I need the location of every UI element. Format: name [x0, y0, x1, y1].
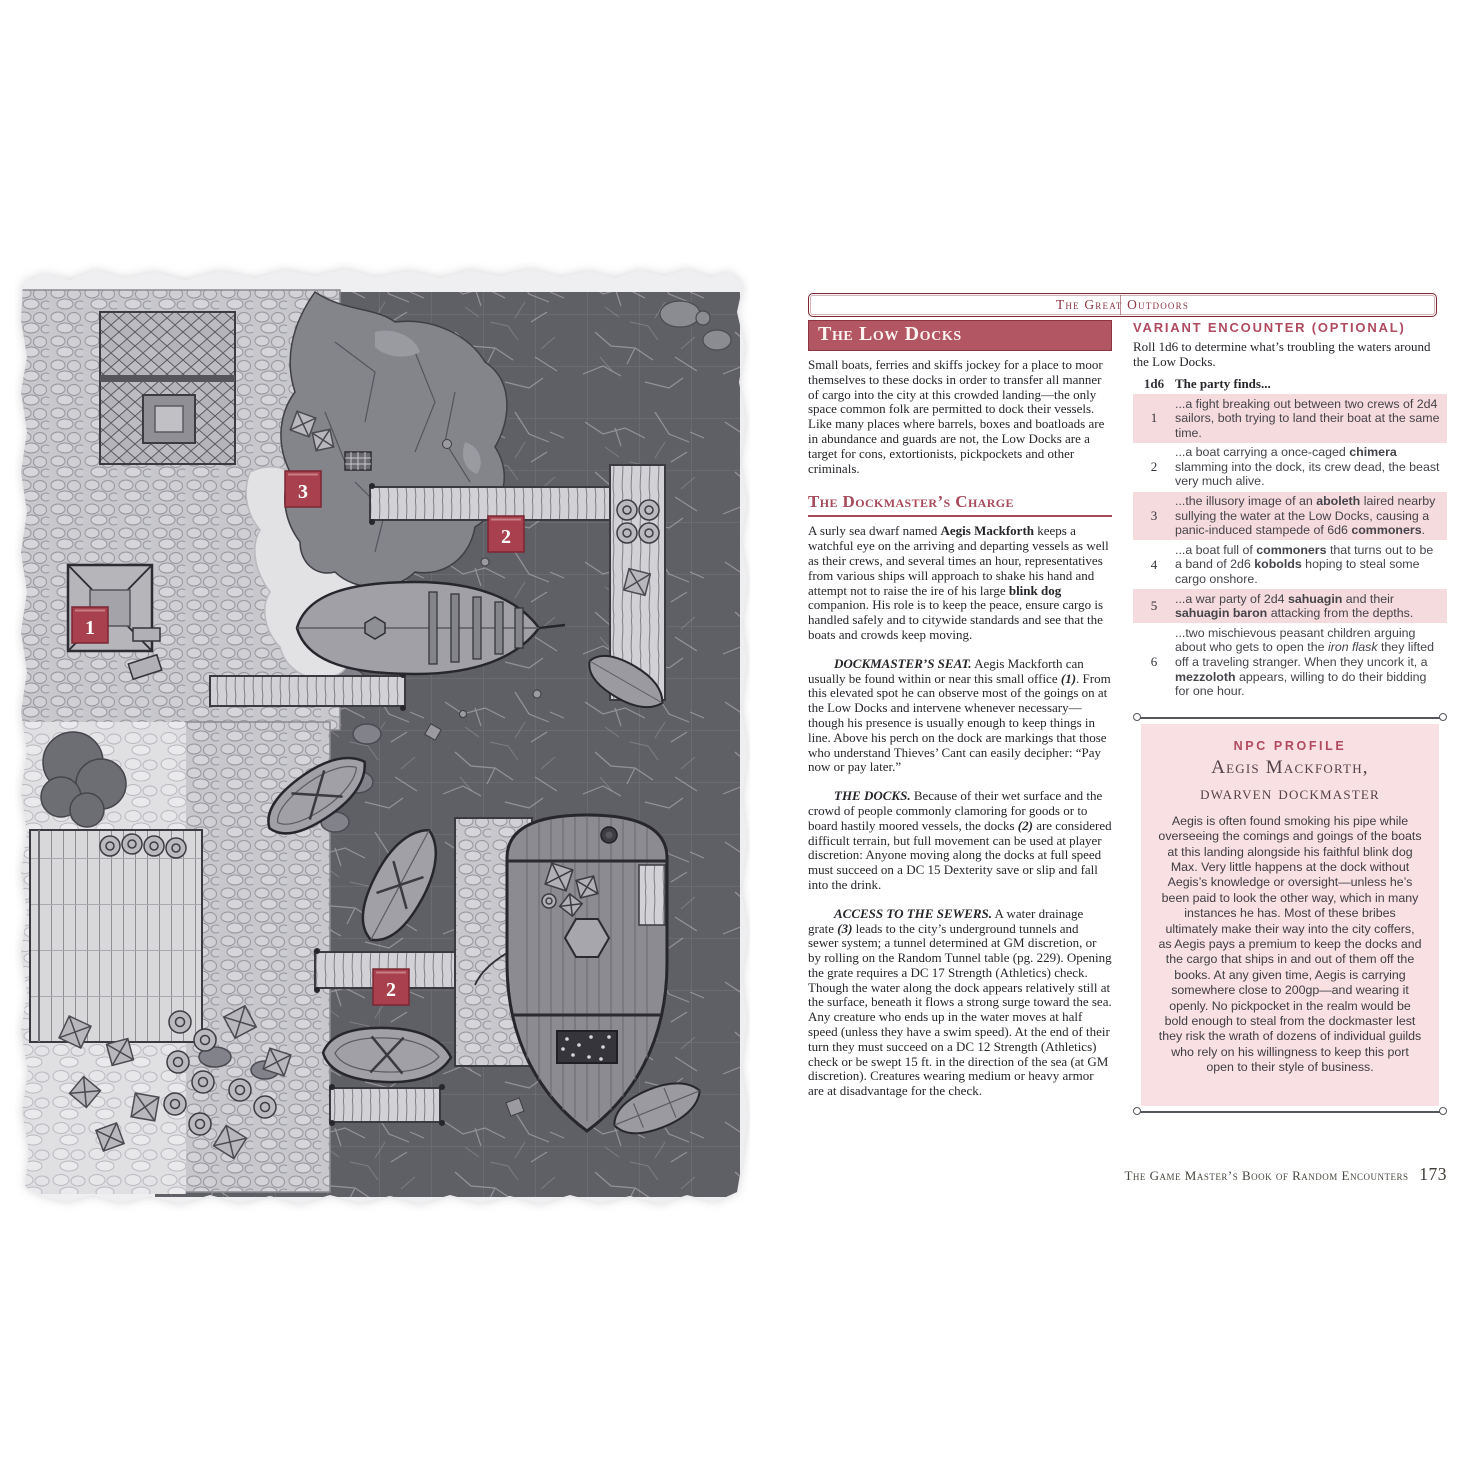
map-marker-2-lower: 2	[373, 969, 409, 1005]
pier-bottom-stub	[329, 1084, 445, 1126]
result-column-header: The party finds...	[1175, 376, 1447, 392]
variant-intro: Roll 1d6 to determine what’s troubling t…	[1133, 339, 1447, 369]
svg-text:1: 1	[85, 617, 95, 639]
the-docks-paragraph: THE DOCKS. Because of their wet surface …	[808, 789, 1112, 893]
dockmaster-paragraph: A surly sea dwarf named Aegis Mackforth …	[808, 524, 1112, 642]
npc-box-top-rule	[1136, 717, 1444, 719]
rule-endpoint-dot	[1133, 713, 1141, 721]
rule-endpoint-dot	[1133, 1107, 1141, 1115]
subsection-heading: The Dockmaster’s Charge	[808, 492, 1112, 517]
band-divider	[1120, 295, 1121, 315]
encounter-text: ...a fight breaking out between two crew…	[1175, 397, 1441, 441]
die-value: 6	[1133, 626, 1175, 699]
svg-text:2: 2	[386, 979, 396, 1001]
wooden-platform	[30, 830, 202, 1042]
rule-endpoint-dot	[1439, 1107, 1447, 1115]
footer-book-title: The Game Master’s Book of Random Encount…	[1124, 1168, 1408, 1183]
sewer-access-paragraph: ACCESS TO THE SEWERS. A water drainage g…	[808, 907, 1112, 1099]
table-row: 2 ...a boat carrying a once-caged chimer…	[1133, 443, 1447, 492]
map-marker-2-upper: 2	[488, 516, 524, 552]
npc-name: Aegis Mackforth,	[1158, 757, 1422, 779]
book-page: 1 3 2 2 The Great Outdoors T	[0, 0, 1473, 1473]
encounter-text: ...a war party of 2d4 sahuagin and their…	[1175, 592, 1441, 621]
svg-text:3: 3	[298, 481, 308, 503]
npc-role: dwarven dockmaster	[1158, 783, 1422, 805]
encounter-text: ...a boat carrying a once-caged chimera …	[1175, 445, 1441, 489]
npc-description: Aegis is often found smoking his pipe wh…	[1158, 814, 1422, 1076]
pier-middle	[210, 672, 406, 711]
table-row: 1 ...a fight breaking out between two cr…	[1133, 394, 1447, 443]
dockmasters-seat-paragraph: DOCKMASTER’S SEAT. Aegis Mackforth can u…	[808, 657, 1112, 775]
dock-map-illustration: 1 3 2 2	[15, 262, 750, 1212]
section-title: The Low Docks	[818, 323, 962, 345]
encounter-text: ...the illusory image of an aboleth lair…	[1175, 494, 1441, 538]
die-value: 3	[1133, 494, 1175, 538]
table-row: 4 ...a boat full of commoners that turns…	[1133, 540, 1447, 589]
intro-paragraph: Small boats, ferries and skiffs jockey f…	[808, 358, 1112, 476]
npc-box-bottom-rule	[1136, 1111, 1444, 1113]
warehouse-building	[100, 312, 235, 464]
right-text-column: Variant Encounter (Optional) Roll 1d6 to…	[1133, 320, 1447, 1113]
npc-profile-kicker: NPC Profile	[1158, 739, 1422, 753]
chapter-title: The Great Outdoors	[1056, 297, 1189, 313]
table-header-row: 1d6 The party finds...	[1133, 376, 1447, 392]
encounter-text: ...a boat full of commoners that turns o…	[1175, 543, 1441, 587]
variant-encounter-table: 1d6 The party finds... 1 ...a fight brea…	[1133, 376, 1447, 701]
left-text-column: The Low Docks Small boats, ferries and s…	[808, 320, 1112, 1099]
die-value: 5	[1133, 592, 1175, 621]
encounter-text: ...two mischievous peasant children argu…	[1175, 626, 1441, 699]
page-number: 173	[1419, 1164, 1447, 1184]
table-row: 3 ...the illusory image of an aboleth la…	[1133, 492, 1447, 541]
rule-endpoint-dot	[1439, 713, 1447, 721]
svg-text:2: 2	[501, 526, 511, 548]
map-marker-1: 1	[72, 607, 108, 643]
die-value: 4	[1133, 543, 1175, 587]
die-value: 1	[1133, 397, 1175, 441]
sewer-grate	[345, 452, 371, 470]
page-footer: The Game Master’s Book of Random Encount…	[808, 1164, 1447, 1185]
table-row: 6 ...two mischievous peasant children ar…	[1133, 623, 1447, 701]
table-row: 5 ...a war party of 2d4 sahuagin and the…	[1133, 589, 1447, 623]
die-column-header: 1d6	[1133, 376, 1175, 392]
chapter-band: The Great Outdoors	[808, 293, 1437, 317]
section-title-banner: The Low Docks	[808, 320, 1112, 351]
map-marker-3: 3	[285, 471, 321, 507]
die-value: 2	[1133, 445, 1175, 489]
variant-encounter-heading: Variant Encounter (Optional)	[1133, 320, 1447, 335]
npc-profile-section: NPC Profile Aegis Mackforth, dwarven doc…	[1133, 717, 1447, 1112]
npc-profile-box: NPC Profile Aegis Mackforth, dwarven doc…	[1141, 724, 1439, 1106]
